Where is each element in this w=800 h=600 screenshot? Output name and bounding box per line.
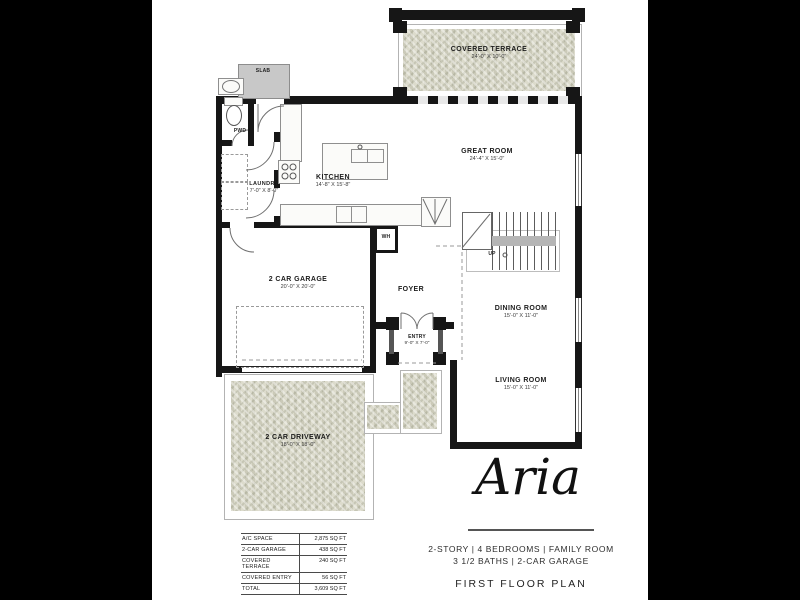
room-label-living-room: LIVING ROOM 15'-0" X 11'-0" (495, 377, 546, 391)
covered-terrace-paving (403, 29, 575, 91)
room-dims: 24'-0" X 10'-0" (451, 54, 527, 60)
table-row: COVERED TERRACE 240 SQ FT (241, 556, 347, 573)
brand-logo: Aria (475, 450, 581, 505)
floor-plan-canvas: COVERED TERRACE 24'-0" X 10'-0" GREAT RO… (0, 0, 800, 600)
washer (221, 154, 248, 182)
wall-top-b (284, 96, 408, 104)
brand-divider (468, 529, 594, 531)
wall-living-left (450, 360, 457, 449)
wall-right-seg (575, 206, 582, 298)
entry-column (433, 317, 446, 330)
kitchen-counter-left (280, 104, 302, 162)
room-name: KITCHEN (316, 174, 351, 181)
walkway-paving (367, 405, 399, 429)
wall-pwd-bottom (216, 140, 232, 146)
terrace-window-wall (408, 96, 568, 104)
pwd-sink-bowl (222, 80, 240, 93)
table-row: A/C SPACE 2,875 SQ FT (241, 533, 347, 545)
room-name: SLAB (256, 68, 270, 74)
room-label-kitchen: KITCHEN 14'-8" X 15'-8" (316, 174, 351, 188)
room-name: COVERED TERRACE (451, 46, 527, 53)
room-label-great-room: GREAT ROOM 24'-4" X 15'-0" (461, 148, 513, 162)
wall-garage-right-lower (370, 322, 376, 372)
room-dims: 20'-0" X 20'-0" (269, 284, 327, 290)
kitchen-sink-basin (336, 206, 352, 223)
table-row: 2-CAR GARAGE 438 SQ FT (241, 545, 347, 556)
roof-edge-bar (393, 10, 583, 20)
garage-parking-outline (236, 306, 364, 368)
room-label-slab: SLAB (256, 68, 270, 74)
row-label: COVERED ENTRY (241, 573, 299, 583)
room-name: UP (488, 251, 495, 257)
label-stairs-up: UP (488, 251, 495, 257)
room-name: 2 CAR GARAGE (269, 276, 327, 283)
wall-left (216, 96, 222, 377)
room-name: DINING ROOM (495, 305, 548, 312)
understair-closet (462, 212, 492, 250)
entry-column (386, 317, 399, 330)
stove (278, 160, 300, 184)
spec-line-2: 3 1/2 BATHS | 2-CAR GARAGE (453, 556, 589, 566)
wall-right-seg (575, 342, 582, 388)
row-value: 2,875 SQ FT (299, 534, 347, 544)
row-label: 2-CAR GARAGE (241, 545, 299, 555)
terrace-column (566, 21, 580, 33)
row-label: A/C SPACE (241, 534, 299, 544)
room-dims: 24'-4" X 15'-0" (461, 156, 513, 162)
row-value: 438 SQ FT (299, 545, 347, 555)
window-great-room (575, 154, 582, 206)
room-dims: 14'-8" X 15'-8" (316, 182, 351, 188)
page-title: FIRST FLOOR PLAN (455, 578, 587, 590)
room-name: FOYER (398, 286, 424, 293)
room-label-dining-room: DINING ROOM 15'-0" X 11'-0" (495, 305, 548, 319)
room-dims: 15'-0" X 11'-0" (495, 385, 546, 391)
room-dims: 9'-0" X 7'-0" (405, 341, 430, 346)
room-label-driveway: 2 CAR DRIVEWAY 18'-0" X 18'-0" (265, 434, 330, 448)
refrigerator (421, 197, 451, 227)
room-label-garage: 2 CAR GARAGE 20'-0" X 20'-0" (269, 276, 327, 290)
kitchen-sink-basin (351, 206, 367, 223)
island-sink-basin (351, 149, 368, 163)
toilet-bowl (226, 105, 242, 126)
room-label-wh: WH (382, 234, 391, 240)
room-label-laundry: LAUNDRY 7'-0" X 8'-0" (249, 181, 278, 194)
room-name: 2 CAR DRIVEWAY (265, 434, 330, 441)
room-dims: 7'-0" X 8'-0" (249, 188, 278, 194)
table-row: TOTAL 3,609 SQ FT (241, 584, 347, 595)
room-name: WH (382, 234, 391, 240)
spec-line-1: 2-STORY | 4 BEDROOMS | FAMILY ROOM (428, 544, 614, 554)
row-label: TOTAL (241, 584, 299, 594)
room-label-pwd: PWD (234, 128, 246, 134)
walkway-paving (403, 373, 437, 429)
roof-edge-cap-left (389, 8, 402, 22)
row-value: 240 SQ FT (299, 556, 347, 572)
room-name: LIVING ROOM (495, 377, 546, 384)
wall-garage-bottom-right (362, 366, 376, 373)
dryer (221, 182, 248, 210)
room-name: PWD (234, 128, 246, 134)
wall-laundry-bottom-a (216, 222, 230, 228)
room-name: GREAT ROOM (461, 148, 513, 155)
entry-cheek-wall (438, 330, 443, 354)
room-label-foyer: FOYER (398, 286, 424, 293)
row-value: 3,609 SQ FT (299, 584, 347, 594)
wall-right-seg (575, 96, 582, 154)
stair-landing (492, 236, 556, 246)
table-row: COVERED ENTRY 56 SQ FT (241, 573, 347, 584)
window-dining-room (575, 298, 582, 342)
row-label: COVERED TERRACE (241, 556, 299, 572)
entry-cheek-wall (389, 330, 394, 354)
island-sink-basin (367, 149, 384, 163)
roof-edge-cap-right (572, 8, 585, 22)
room-label-covered-terrace: COVERED TERRACE 24'-0" X 10'-0" (451, 46, 527, 60)
room-dims: 15'-0" X 11'-0" (495, 313, 548, 319)
wall-laundry-bottom-b (254, 222, 274, 228)
room-dims: 18'-0" X 18'-0" (265, 442, 330, 448)
row-value: 56 SQ FT (299, 573, 347, 583)
window-living-room (575, 388, 582, 432)
terrace-column (393, 21, 407, 33)
room-name: ENTRY (405, 334, 430, 340)
room-name: LAUNDRY (249, 181, 278, 187)
area-summary-table: A/C SPACE 2,875 SQ FT 2-CAR GARAGE 438 S… (241, 533, 347, 595)
room-label-entry: ENTRY 9'-0" X 7'-0" (405, 334, 430, 346)
wall-foyer-bottom-b (446, 322, 454, 329)
wall-pwd-right (248, 96, 254, 146)
